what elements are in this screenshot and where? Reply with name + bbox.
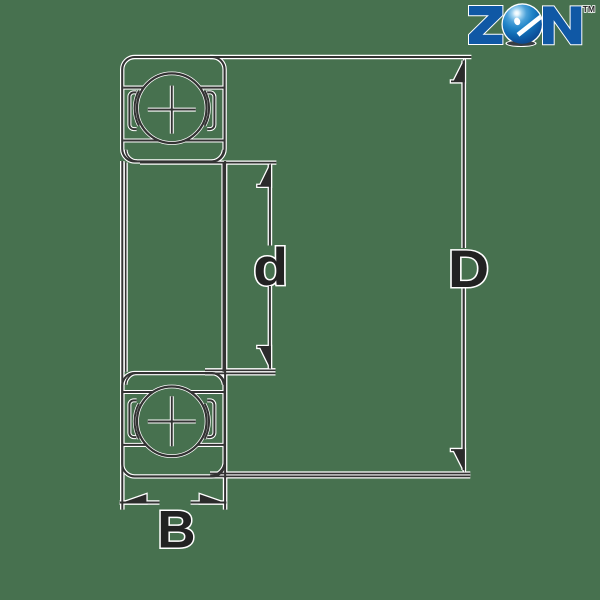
svg-text:TM: TM: [583, 4, 595, 14]
svg-text:d: d: [253, 238, 288, 297]
svg-text:B: B: [157, 501, 195, 560]
svg-text:D: D: [448, 240, 489, 299]
